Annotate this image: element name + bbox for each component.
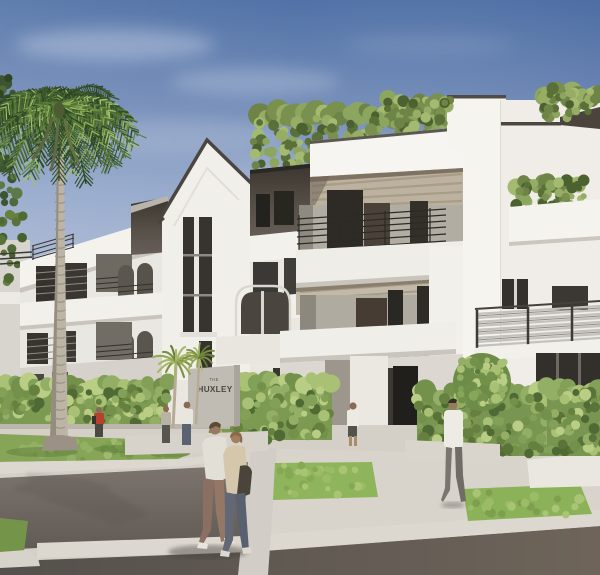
svg-text:THE: THE: [209, 377, 219, 382]
svg-text:HUXLEY: HUXLEY: [197, 385, 232, 394]
